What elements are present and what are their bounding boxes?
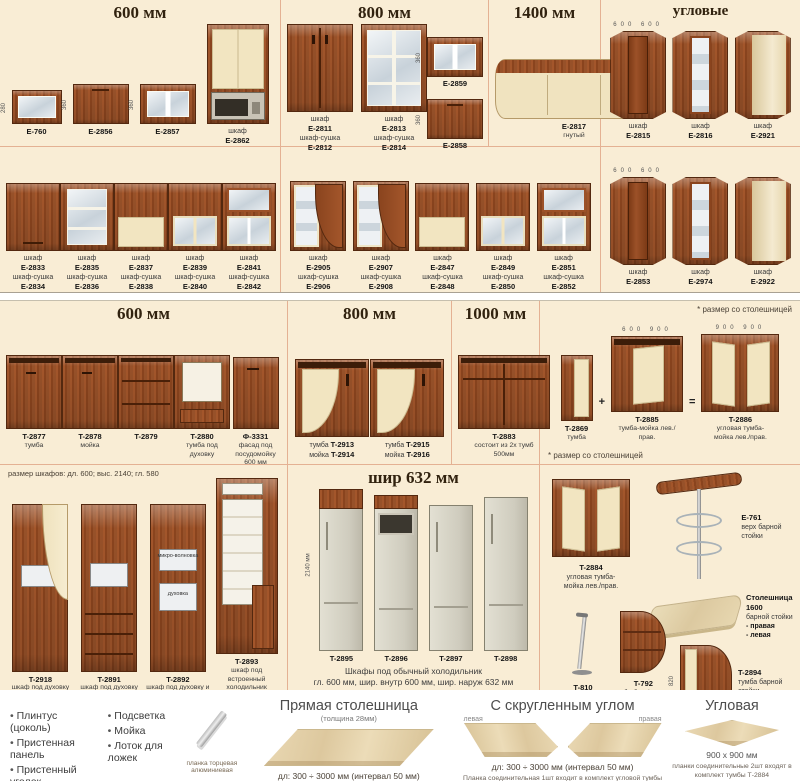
- cabinet-illustration: [233, 357, 279, 429]
- section-wall-row2-left: шкафE-2833шкаф-сушкаE-2834 шкафE-2835шка…: [0, 147, 281, 292]
- item-label: шкафE-2813шкаф-сушкаE-2814: [374, 115, 415, 151]
- dimension-label: 2140 мм: [306, 553, 312, 576]
- cabinet-illustration: [361, 24, 427, 112]
- item-label: T-2877тумба: [22, 432, 45, 462]
- items-row: 600 600 шкафE-2815 шкафE-2816 шкафE-2921: [601, 21, 800, 146]
- cabinet-illustration: [427, 99, 483, 139]
- worktop-illustration: [464, 723, 558, 757]
- cabinet-illustration: [374, 495, 418, 651]
- item-label: T-2898: [494, 654, 517, 664]
- catalog-item: T-2878мойка: [62, 355, 118, 462]
- section-fridge-cabinets: шир 632 мм выс. до 1775 мм 2140 мм T-289…: [288, 465, 540, 690]
- worktop-rounded-note: дл: 300 ÷ 3000 мм (интервал 50 мм): [492, 762, 634, 772]
- item-label: E-761верх барной стойки: [741, 513, 800, 541]
- accessory-item: Мойка: [108, 725, 180, 737]
- catalog-item: 600 600 шкафE-2853: [610, 168, 666, 290]
- item-label: Столешница 1600барной стойки- правая- ле…: [746, 593, 800, 640]
- aluminium-strip-block: планка торцевая алюминиевая: [183, 696, 240, 781]
- catalog-item: Ф-3331фасад под посудомойку 600 мм: [230, 357, 281, 462]
- catalog-item: выс. до 1930 мм T-2897: [429, 505, 473, 664]
- cabinet-illustration: [476, 183, 530, 251]
- item-label: шкафE-2811шкаф-сушкаE-2812: [300, 115, 341, 151]
- bar-shelf-illustration: [620, 611, 666, 673]
- dimension-label: 820: [669, 676, 675, 686]
- cabinet-illustration: [458, 355, 550, 429]
- size-header-base-800: 800 мм: [288, 304, 451, 324]
- accessories-list: Плинтус (цоколь) Пристенная панель Прист…: [10, 696, 179, 781]
- catalog-item: 360 E-2857: [140, 84, 196, 149]
- item-label: T-2879: [134, 432, 157, 462]
- catalog-item: T-2893шкаф под встроенный холодильник h=…: [215, 478, 279, 702]
- cabinet-illustration: [216, 478, 278, 654]
- cabinet-illustration: [168, 183, 222, 251]
- accessories-worktops-area: Плинтус (цоколь) Пристенная панель Прист…: [0, 690, 800, 781]
- cabinet-illustration: [290, 181, 346, 251]
- item-label: тумбаT-2913мойкаT-2914: [309, 440, 354, 462]
- cabinet-illustration: [222, 183, 276, 251]
- items-subrow: шкафE-2811шкаф-сушкаE-2812 шкафE-2813шка…: [287, 24, 427, 151]
- catalog-item: T-2879: [118, 355, 174, 462]
- item-label: T-2895: [330, 654, 353, 664]
- cabinet-illustration: [60, 183, 114, 251]
- cabinet-illustration: [537, 183, 591, 251]
- cabinet-illustration: [118, 355, 174, 429]
- section-wall-600: 600 мм 280 E-760 360 E-2856 360 E-2857: [0, 0, 281, 146]
- equals-sign: =: [689, 396, 695, 442]
- worktop-straight-note: дл: 300 ÷ 3000 мм (интервал 50 мм): [278, 771, 420, 781]
- catalog-item: шкафE-2922: [735, 177, 791, 290]
- item-label: шкафE-2853: [626, 268, 650, 290]
- bar-pole-illustration: [568, 613, 598, 677]
- catalog-item: шкафE-2862: [207, 24, 269, 149]
- item-label: шкафE-2851шкаф-сушкаE-2852: [543, 254, 584, 290]
- item-label: шкафE-2841шкаф-сушкаE-2842: [229, 254, 270, 290]
- accessories-col1: Плинтус (цоколь) Пристенная панель Прист…: [10, 710, 94, 781]
- cabinet-illustration: [672, 31, 728, 119]
- cabinet-illustration: [672, 177, 728, 265]
- dimension-label: 900 900: [716, 325, 766, 334]
- catalog-item: 280 E-760: [12, 90, 62, 149]
- item-label: шкафE-2907шкаф-сушкаE-2908: [361, 254, 402, 290]
- catalog-item: 600 600 шкафE-2815: [610, 22, 666, 144]
- worktop-rounded-foot: Планка соединительная 1шт входит в компл…: [463, 775, 663, 781]
- catalog-item: T-2918шкаф под духовку или микроволновку: [8, 504, 72, 702]
- cabinet-illustration: [552, 479, 630, 557]
- items-row: шкафE-2811шкаф-сушкаE-2812 шкафE-2813шка…: [281, 24, 488, 153]
- cabinet-illustration: [353, 181, 409, 251]
- worktop-corner-title: Угловая: [705, 698, 759, 714]
- cabinet-illustration: [370, 359, 444, 437]
- section-wall-1400: 1400 мм E-2817гнутый: [489, 0, 601, 146]
- items-row: 600 600 шкафE-2853 шкафE-2974 шкафE-2922: [601, 147, 800, 292]
- cabinet-illustration: [484, 497, 528, 651]
- item-label: T-2886угловая тумба-мойка лев./прав.: [708, 415, 772, 442]
- cabinet-illustration: [610, 31, 666, 119]
- catalog-item: шкафE-2974: [672, 177, 728, 290]
- size-header-1400: 1400 мм: [489, 3, 600, 23]
- catalog-item: выс. до 2015 мм T-2898: [484, 497, 528, 664]
- cabinet-illustration: [81, 504, 137, 672]
- bar-entry-t2884: T-2884угловая тумба-мойка лев./прав.: [552, 479, 630, 591]
- items-row: E-2817гнутый: [489, 24, 600, 146]
- catalog-item: T-2877тумба: [6, 355, 62, 462]
- worktop-corner-block: Угловая 900 х 900 мм планки соединительн…: [672, 696, 792, 781]
- items-row: выс. до 1775 мм 2140 мм T-2895 выс. до 1…: [288, 489, 539, 666]
- catalog-item: T-2883состоит из 2х тумб 500мм: [458, 355, 550, 462]
- item-label: шкафE-2837шкаф-сушкаE-2838: [121, 254, 162, 290]
- item-label: шкафE-2833шкаф-сушкаE-2834: [13, 254, 54, 290]
- worktop-illustration: [568, 723, 662, 757]
- cabinet-illustration: [287, 24, 353, 112]
- catalog-item: шкафE-2811шкаф-сушкаE-2812: [287, 24, 353, 151]
- section-bar-elements: T-2884угловая тумба-мойка лев./прав. E-7…: [540, 465, 800, 690]
- cabinet-illustration: [610, 177, 666, 265]
- size-header-632: шир 632 мм: [288, 468, 539, 488]
- cabinet-illustration: [735, 177, 791, 265]
- catalog-item: шкафE-2841шкаф-сушкаE-2842: [222, 183, 276, 290]
- cabinet-illustration: [140, 84, 196, 124]
- item-label: Ф-3331фасад под посудомойку 600 мм: [230, 432, 281, 462]
- cabinet-illustration: микро-волновкадуховка: [150, 504, 206, 672]
- cabinet-illustration: [701, 334, 779, 412]
- cabinet-illustration: [295, 359, 369, 437]
- worktop-size-note: * размер со столешницей: [548, 451, 643, 460]
- item-label: шкафE-2835шкаф-сушкаE-2836: [67, 254, 108, 290]
- cabinet-illustration: [114, 183, 168, 251]
- item-label: E-2817гнутый: [562, 122, 586, 144]
- catalog-item: 600 900 T-2885тумба-мойка лев./прав.: [611, 327, 683, 442]
- item-label: T-2884угловая тумба-мойка лев./прав.: [558, 563, 624, 591]
- catalog-item: шкафE-2907шкаф-сушкаE-2908: [353, 181, 409, 290]
- worktop-straight-sub: (толщина 28мм): [321, 714, 377, 723]
- catalog-item: T-2891шкаф под духовку или микроволновку: [77, 504, 141, 702]
- dimension-label: 600 600: [613, 22, 663, 31]
- catalog-item: 360 E-2859: [427, 37, 483, 89]
- corner-header: угловые: [601, 3, 800, 20]
- catalog-item: шкафE-2813шкаф-сушкаE-2814: [361, 24, 427, 151]
- section-corner-formula: * размер со столешницей * размер со стол…: [540, 301, 800, 464]
- catalog-item: шкафE-2905шкаф-сушкаE-2906: [290, 181, 346, 290]
- tall-sizes-note: размер шкафов: дл. 600; выс. 2140; гл. 5…: [0, 465, 287, 478]
- section-base-600: 600 мм T-2877тумба T-2878мойка T-2879: [0, 301, 288, 464]
- item-label: T-2878мойка: [78, 432, 101, 462]
- inner-label: духовка: [151, 591, 205, 597]
- catalog-item: шкафE-2833шкаф-сушкаE-2834: [6, 183, 60, 290]
- cabinet-illustration: [12, 90, 62, 124]
- dimension-label: 360: [129, 100, 135, 110]
- accessory-item: Пристенная панель: [10, 737, 94, 761]
- worktop-illustration: [264, 729, 434, 766]
- dimension-label: 360: [416, 53, 422, 63]
- item-label: шкафE-2839шкаф-сушкаE-2840: [175, 254, 216, 290]
- catalog-item: шкафE-2816: [672, 31, 728, 144]
- dimension-label: 360: [62, 100, 68, 110]
- section-base-1000: 1000 мм T-2883состоит из 2х тумб 500мм: [452, 301, 540, 464]
- cabinet-illustration: [6, 183, 60, 251]
- items-row: 280 E-760 360 E-2856 360 E-2857 шкафE-: [0, 24, 280, 151]
- bar-entry-e761: E-761верх барной стойки: [656, 471, 800, 583]
- item-label: T-2897: [439, 654, 462, 664]
- cabinet-illustration: [611, 336, 683, 412]
- items-row: тумбаT-2913мойкаT-2914 тумбаT-2915мойкаT…: [288, 325, 451, 464]
- dimension-label: 600 900: [622, 327, 672, 336]
- item-label: шкафE-2847шкаф-сушкаE-2848: [422, 254, 463, 290]
- cabinet-illustration: [429, 505, 473, 651]
- item-label: шкафE-2815: [626, 122, 650, 144]
- cabinet-illustration: [427, 37, 483, 77]
- worktop-corner-foot: планки соединительные 2шт входят в компл…: [672, 763, 792, 781]
- catalog-item: шкафE-2837шкаф-сушкаE-2838: [114, 183, 168, 290]
- catalog-item: 360 E-2856: [73, 84, 129, 149]
- base-cabinets-block: 600 мм T-2877тумба T-2878мойка T-2879: [0, 300, 800, 691]
- items-row: шкафE-2833шкаф-сушкаE-2834 шкафE-2835шка…: [0, 147, 280, 292]
- item-label: шкафE-2974: [688, 268, 712, 290]
- catalog-item: 360 E-2858: [427, 99, 483, 151]
- items-row: T-2877тумба T-2878мойка T-2879 T-2880тум…: [0, 325, 287, 464]
- cabinet-illustration: [62, 355, 118, 429]
- accessory-item: Пристенный уголок: [10, 764, 94, 781]
- worktop-size-note: * размер со столешницей: [697, 305, 792, 314]
- cabinet-illustration: [6, 355, 62, 429]
- catalog-item: T-2880тумба под духовку: [174, 355, 230, 462]
- corner-formula: T-2869тумба + 600 900 T-2885тумба-мойка …: [540, 301, 800, 470]
- catalog-item: тумбаT-2915мойкаT-2916: [370, 359, 444, 462]
- item-label: E-2856: [88, 127, 112, 149]
- item-label: шкафE-2816: [688, 122, 712, 144]
- item-label: шкафE-2922: [751, 268, 775, 290]
- cabinet-illustration: [73, 84, 129, 124]
- catalog-item: тумбаT-2913мойкаT-2914: [295, 359, 369, 462]
- items-row: T-2918шкаф под духовку или микроволновку…: [0, 478, 287, 704]
- accessory-item: Лоток для ложек: [108, 740, 180, 764]
- catalog-item: выс. до 1520 мм T-2896: [374, 495, 418, 664]
- section-base-800: 800 мм тумбаT-2913мойкаT-2914 тумбаT-291…: [288, 301, 452, 464]
- cabinet-illustration: [735, 31, 791, 119]
- size-header-800: 800 мм: [281, 3, 488, 23]
- inner-label: микро-волновка: [151, 553, 205, 559]
- fridge-caption: Шкафы под обычный холодильник: [288, 666, 539, 677]
- cabinet-illustration: [174, 355, 230, 429]
- catalog-item: шкафE-2921: [735, 31, 791, 144]
- bar-top-illustration: [656, 471, 735, 583]
- catalog-item: микро-волновкадуховка T-2892шкаф под дух…: [146, 504, 210, 702]
- item-label: E-2857: [155, 127, 179, 149]
- section-wall-800: 800 мм шкафE-2811шкаф-сушкаE-2812 шкафE-…: [281, 0, 489, 146]
- item-label: шкафE-2905шкаф-сушкаE-2906: [298, 254, 339, 290]
- items-row: шкафE-2905шкаф-сушкаE-2906 шкафE-2907шка…: [281, 147, 600, 292]
- bar-entry-t792: T-792тумба без фасадов: [612, 611, 675, 698]
- item-label: шкафE-2862: [225, 127, 249, 149]
- cabinet-illustration: [415, 183, 469, 251]
- items-row: T-2883состоит из 2х тумб 500мм: [452, 325, 539, 464]
- worktop-illustration: [685, 720, 779, 746]
- size-header-base-600: 600 мм: [0, 304, 287, 324]
- right-label: правая: [568, 716, 662, 723]
- item-label: T-2869тумба: [565, 424, 588, 443]
- aluminium-strip-label: планка торцевая алюминиевая: [183, 760, 240, 774]
- item-label: T-2885тумба-мойка лев./прав.: [615, 415, 679, 442]
- section-tall-cabinets: размер шкафов: дл. 600; выс. 2140; гл. 5…: [0, 465, 288, 690]
- bar-elements-grid: T-2884угловая тумба-мойка лев./прав. E-7…: [540, 465, 800, 690]
- section-wall-corner: угловые 600 600 шкафE-2815 шкафE-2816 шк…: [601, 0, 800, 146]
- size-header-base-1000: 1000 мм: [452, 304, 539, 324]
- accessories-col2: Подсветка Мойка Лоток для ложек: [108, 710, 180, 781]
- aluminium-strip-illustration: [196, 710, 227, 747]
- item-label: E-760: [26, 127, 46, 149]
- catalog-item: выс. до 1775 мм 2140 мм T-2895: [319, 489, 363, 664]
- catalog-item: шкафE-2835шкаф-сушкаE-2836: [60, 183, 114, 290]
- dimension-label: 360: [416, 115, 422, 125]
- catalog-item: шкафE-2849шкаф-сушкаE-2850: [476, 183, 530, 290]
- cabinet-illustration: [561, 355, 593, 421]
- kitchen-catalog-page: 600 мм 280 E-760 360 E-2856 360 E-2857: [0, 0, 800, 781]
- catalog-item: шкафE-2847шкаф-сушкаE-2848: [415, 183, 469, 290]
- item-label: T-2883состоит из 2х тумб 500мм: [472, 432, 536, 462]
- item-label: T-2896: [384, 654, 407, 664]
- item-label: тумбаT-2915мойкаT-2916: [385, 440, 430, 462]
- worktop-corner-size: 900 х 900 мм: [706, 750, 757, 760]
- items-stack: 360 E-2859 360 E-2858: [427, 37, 483, 151]
- section-wall-row2-corner: 600 600 шкафE-2853 шкафE-2974 шкафE-2922: [601, 147, 800, 292]
- worktop-straight-title: Прямая столешница: [280, 698, 418, 714]
- item-label: E-2859: [443, 79, 467, 89]
- worktop-straight-block: Прямая столешница (толщина 28мм) дл: 300…: [244, 696, 453, 781]
- plus-sign: +: [599, 396, 605, 442]
- section-wall-row2-mid: шкафE-2905шкаф-сушкаE-2906 шкафE-2907шка…: [281, 147, 601, 292]
- wall-cabinets-block: 600 мм 280 E-760 360 E-2856 360 E-2857: [0, 0, 800, 293]
- worktop-rounded-pair: левая правая: [464, 716, 662, 757]
- catalog-item: 900 900 T-2886угловая тумба-мойка лев./п…: [701, 325, 779, 442]
- cabinet-illustration: [207, 24, 269, 124]
- item-label: шкафE-2849шкаф-сушкаE-2850: [483, 254, 524, 290]
- accessory-item: Подсветка: [108, 710, 180, 722]
- worktop-rounded-title: С скругленным углом: [491, 698, 635, 714]
- worktop-rounded-block: С скругленным углом левая правая дл: 300…: [457, 696, 668, 781]
- catalog-item: шкафE-2851шкаф-сушкаE-2852: [537, 183, 591, 290]
- item-label: T-2880тумба под духовку: [174, 432, 230, 462]
- size-header-600: 600 мм: [0, 3, 280, 23]
- catalog-item: шкафE-2839шкаф-сушкаE-2840: [168, 183, 222, 290]
- cabinet-illustration: [319, 489, 363, 651]
- dimension-label: 600 600: [613, 168, 663, 177]
- left-label: левая: [464, 716, 558, 723]
- cabinet-illustration: [12, 504, 68, 672]
- accessory-item: Плинтус (цоколь): [10, 710, 94, 734]
- item-label: шкафE-2921: [751, 122, 775, 144]
- catalog-item: T-2869тумба: [561, 355, 593, 443]
- dimension-label: 280: [1, 103, 7, 113]
